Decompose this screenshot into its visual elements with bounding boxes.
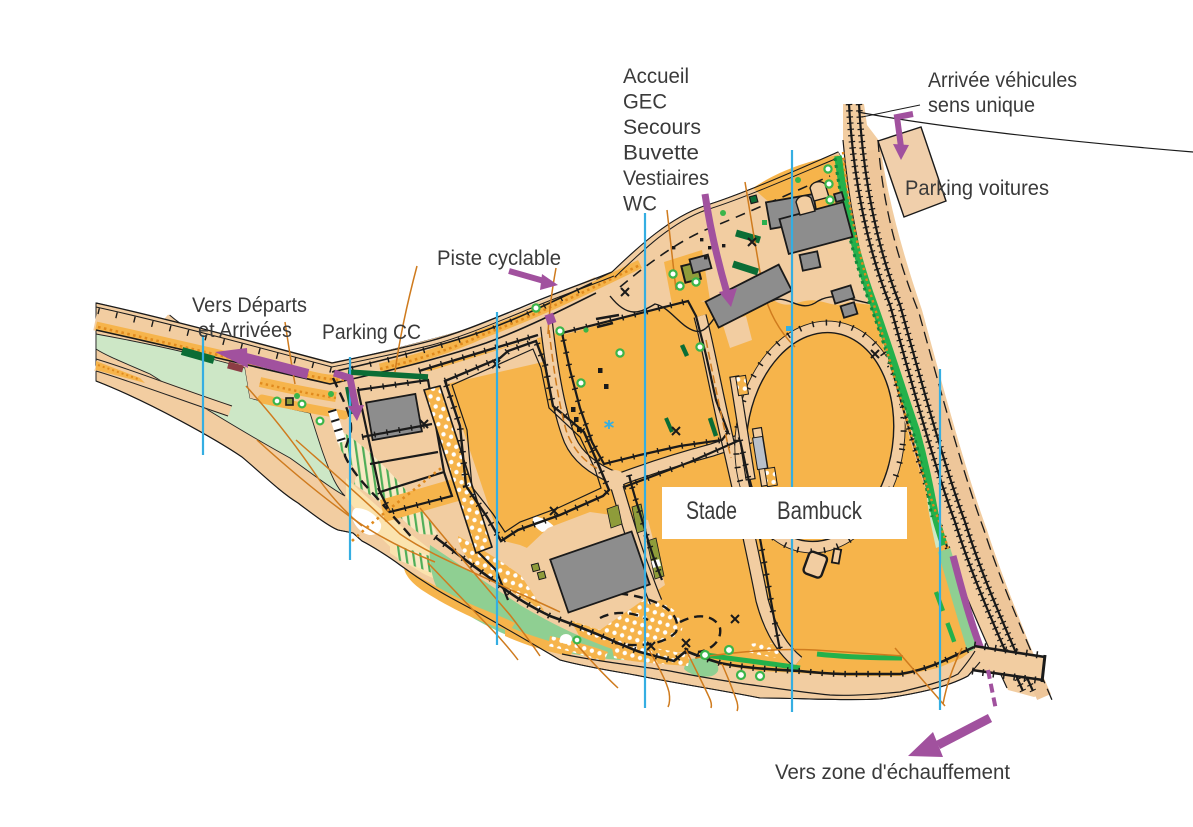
svg-text:Stade: Stade (686, 497, 737, 525)
svg-text:Secours: Secours (623, 115, 701, 139)
svg-text:Bambuck: Bambuck (777, 497, 862, 525)
svg-text:Vestiaires: Vestiaires (623, 166, 709, 190)
svg-text:Arrivée véhicules: Arrivée véhicules (928, 68, 1077, 92)
svg-text:Accueil: Accueil (623, 64, 689, 88)
svg-text:Buvette: Buvette (623, 141, 699, 165)
svg-text:Parking CC: Parking CC (322, 320, 421, 344)
svg-text:Piste cyclable: Piste cyclable (437, 246, 561, 270)
svg-text:WC: WC (623, 192, 657, 216)
svg-text:et Arrivées: et Arrivées (198, 318, 292, 342)
svg-text:GEC: GEC (623, 90, 667, 114)
svg-text:Vers Départs: Vers Départs (192, 293, 307, 317)
svg-text:Vers zone d'échauffement: Vers zone d'échauffement (775, 760, 1010, 784)
svg-text:Parking voitures: Parking voitures (905, 176, 1049, 200)
svg-text:sens unique: sens unique (928, 93, 1035, 117)
